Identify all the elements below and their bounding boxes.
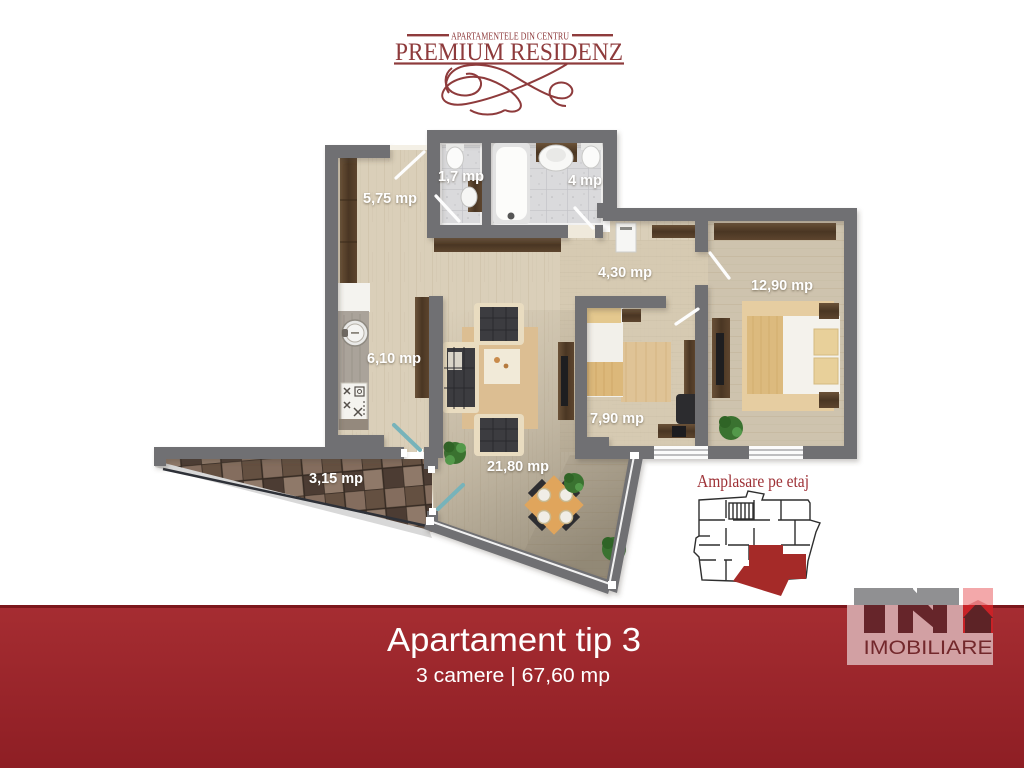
- svg-text:6,10 mp: 6,10 mp: [367, 351, 421, 367]
- svg-text:IMOBILIARE: IMOBILIARE: [864, 638, 993, 659]
- svg-text:12,90 mp: 12,90 mp: [751, 278, 813, 294]
- svg-text:PREMIUM RESIDENZ: PREMIUM RESIDENZ: [395, 39, 623, 66]
- svg-text:21,80 mp: 21,80 mp: [487, 459, 549, 475]
- svg-text:1,7 mp: 1,7 mp: [438, 169, 484, 185]
- svg-text:5,75 mp: 5,75 mp: [363, 191, 417, 207]
- svg-text:7,90 mp: 7,90 mp: [590, 411, 644, 427]
- svg-text:Amplasare pe etaj: Amplasare pe etaj: [697, 471, 809, 491]
- svg-text:4,30 mp: 4,30 mp: [598, 265, 652, 281]
- svg-text:3 camere | 67,60 mp: 3 camere | 67,60 mp: [416, 664, 610, 687]
- svg-text:Apartament tip 3: Apartament tip 3: [387, 621, 641, 658]
- svg-text:3,15 mp: 3,15 mp: [309, 471, 363, 487]
- svg-text:4 mp: 4 mp: [568, 173, 602, 189]
